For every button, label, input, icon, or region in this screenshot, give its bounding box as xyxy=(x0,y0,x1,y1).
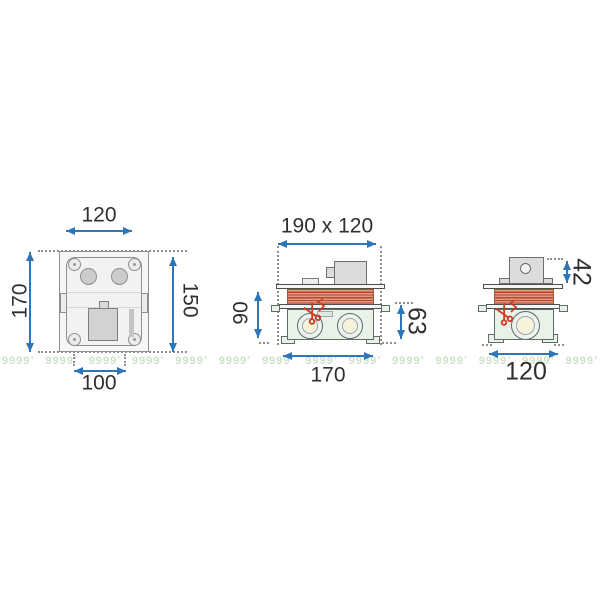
dim-label-front-top: 120 xyxy=(81,205,116,226)
dim-label-side-right: 63 xyxy=(404,307,429,335)
flange-tab xyxy=(271,305,280,312)
watermark-glyph: 9999ʼ xyxy=(435,355,468,367)
flange-tab xyxy=(381,305,390,312)
guide-line xyxy=(554,344,564,346)
technical-drawing: 9999ʼ9999ʼ9999ʼ9999ʼ9999ʼ9999ʼ9999ʼ9999ʼ… xyxy=(0,0,600,600)
dim-arrow-front-right xyxy=(169,257,177,352)
dim-label-end-bottom: 120 xyxy=(505,360,547,385)
panel-line xyxy=(67,292,141,293)
screw-icon xyxy=(128,258,141,271)
screw-icon xyxy=(68,333,81,346)
dim-label-front-right: 150 xyxy=(180,282,201,317)
dim-label-side-left: 90 xyxy=(231,301,252,324)
dim-label-side-bottom: 170 xyxy=(310,365,345,386)
watermark-glyph: 9999ʼ xyxy=(2,355,35,367)
valve-port xyxy=(80,268,97,285)
pipe-port-inner xyxy=(342,318,358,334)
dim-label-front-left: 170 xyxy=(10,283,31,318)
side-clip xyxy=(141,293,148,313)
valve-port xyxy=(111,268,128,285)
dim-arrow-side-bottom xyxy=(283,352,373,360)
guide-line xyxy=(380,246,382,345)
dim-arrow-front-top xyxy=(66,227,132,235)
guide-line xyxy=(277,246,279,345)
watermark-glyph: 9999ʼ xyxy=(175,355,208,367)
side-slot xyxy=(129,309,134,337)
guide-line xyxy=(482,344,492,346)
dim-label-side-top: 190 x 120 xyxy=(281,216,373,237)
side-clip xyxy=(60,293,67,313)
flange-tab xyxy=(559,305,568,312)
cuttable-depth-section xyxy=(287,289,374,304)
watermark-glyph: 9999ʼ xyxy=(565,355,598,367)
dim-label-end-right: 42 xyxy=(569,258,594,286)
dim-label-front-bottom: 100 xyxy=(81,373,116,394)
bracket-hole xyxy=(520,263,531,274)
guide-line xyxy=(547,258,563,260)
flange-tab xyxy=(478,305,487,312)
dim-arrow-side-left xyxy=(254,292,262,338)
screw-icon xyxy=(68,258,81,271)
guide-line xyxy=(395,302,413,304)
watermark-glyph: 9999ʼ xyxy=(89,355,122,367)
guide-line xyxy=(382,342,396,344)
watermark-glyph: 9999ʼ xyxy=(392,355,425,367)
guide-line xyxy=(259,342,269,344)
pipe-port-inner xyxy=(516,316,535,335)
cartridge-block xyxy=(88,308,118,341)
watermark-glyph: 9999ʼ xyxy=(132,355,165,367)
watermark-glyph: 9999ʼ xyxy=(219,355,252,367)
dim-arrow-side-top xyxy=(278,240,376,248)
mounting-bracket xyxy=(334,261,367,286)
guide-line xyxy=(124,354,126,366)
guide-line xyxy=(73,354,75,366)
